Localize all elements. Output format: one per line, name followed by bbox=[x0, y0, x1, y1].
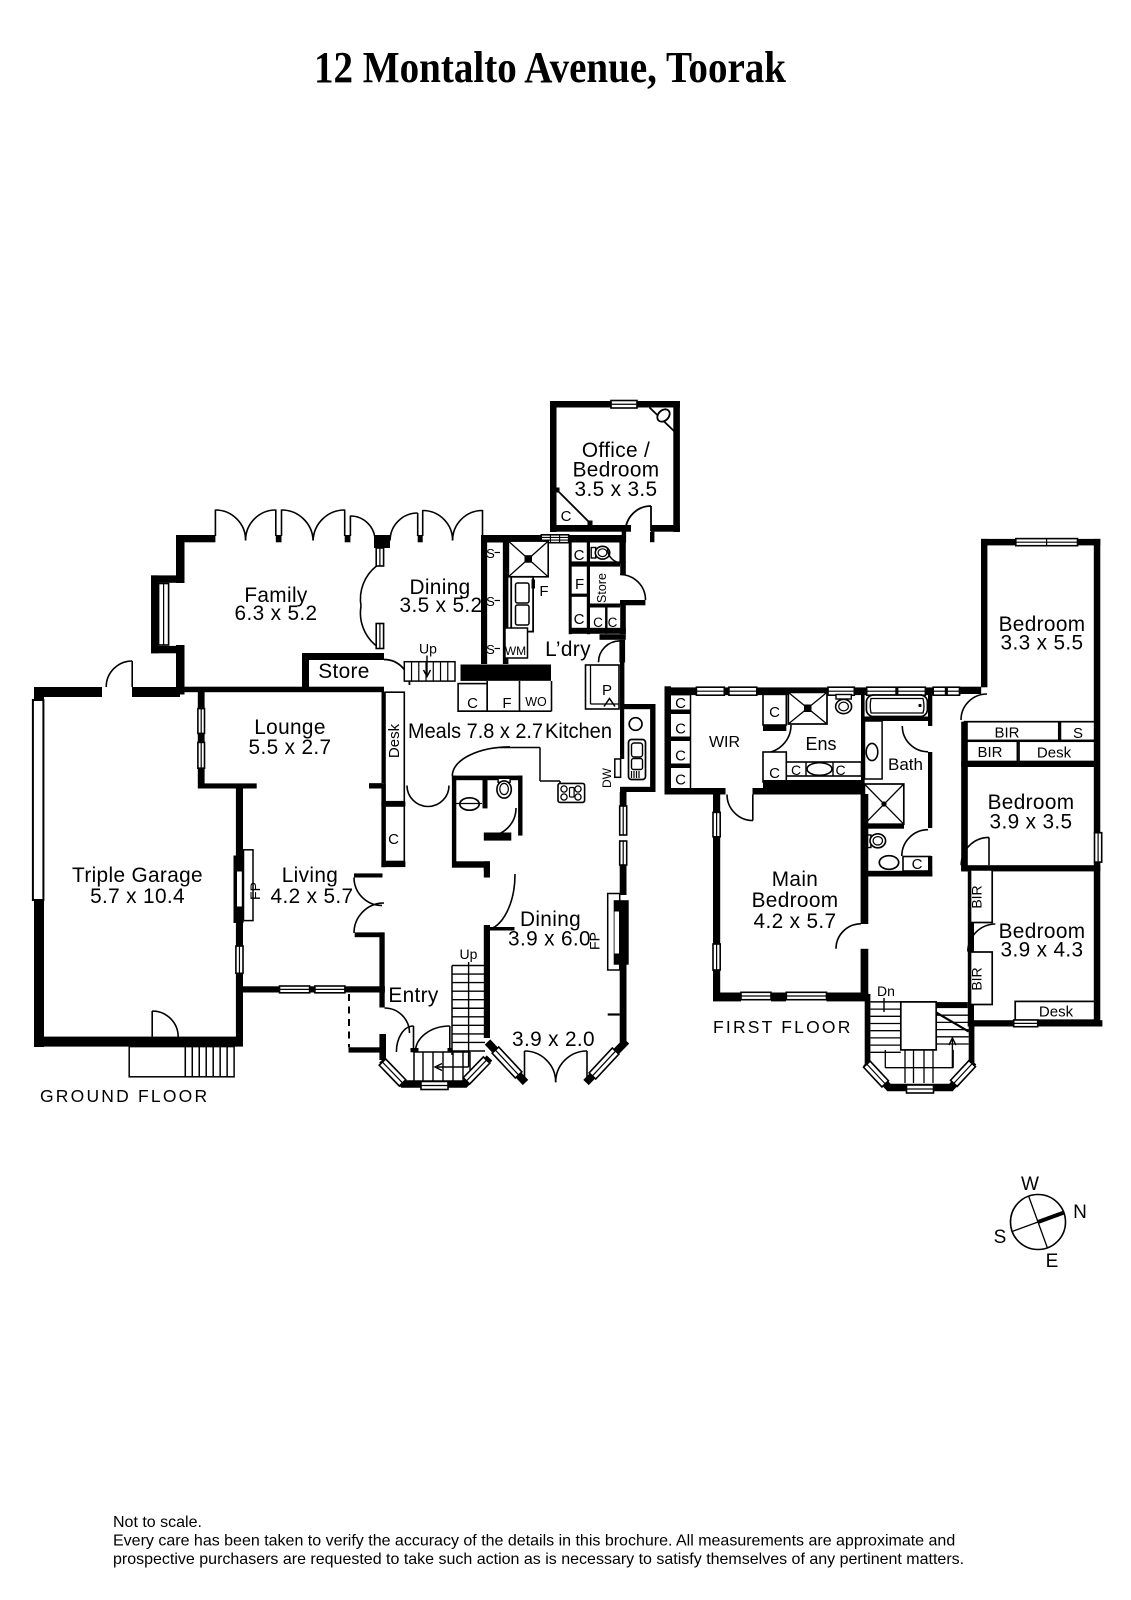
svg-text:P: P bbox=[602, 682, 612, 699]
svg-text:C: C bbox=[561, 508, 572, 525]
svg-text:BIR: BIR bbox=[977, 744, 1002, 761]
svg-text:Not to scale.: Not to scale. bbox=[113, 1514, 202, 1531]
svg-text:C: C bbox=[675, 748, 686, 765]
svg-text:Bedroom: Bedroom bbox=[752, 889, 839, 912]
svg-text:DW: DW bbox=[600, 767, 614, 788]
svg-text:C: C bbox=[769, 765, 780, 782]
svg-text:WM: WM bbox=[505, 644, 526, 658]
svg-text:F: F bbox=[575, 576, 584, 593]
svg-text:5.5 x 2.7: 5.5 x 2.7 bbox=[249, 736, 332, 759]
svg-text:3.9 x 4.3: 3.9 x 4.3 bbox=[1001, 939, 1084, 962]
svg-text:L’dry: L’dry bbox=[545, 638, 591, 661]
svg-text:4.2 x 5.7: 4.2 x 5.7 bbox=[271, 885, 354, 908]
svg-text:FP: FP bbox=[247, 882, 263, 900]
svg-text:C: C bbox=[388, 831, 399, 848]
svg-text:S: S bbox=[486, 642, 495, 657]
svg-text:WIR: WIR bbox=[709, 734, 740, 751]
svg-text:C: C bbox=[675, 772, 686, 789]
svg-text:Triple Garage: Triple Garage bbox=[72, 864, 203, 887]
svg-text:4.2 x 5.7: 4.2 x 5.7 bbox=[754, 910, 837, 933]
svg-text:5.7 x 10.4: 5.7 x 10.4 bbox=[90, 885, 185, 908]
svg-text:3.5 x 5.2: 3.5 x 5.2 bbox=[400, 594, 483, 617]
svg-text:Desk: Desk bbox=[386, 723, 403, 758]
svg-text:BIR: BIR bbox=[969, 885, 985, 908]
svg-text:C: C bbox=[593, 615, 603, 630]
svg-text:C: C bbox=[574, 547, 585, 564]
svg-text:C: C bbox=[608, 615, 618, 630]
svg-text:6.3 x 5.2: 6.3 x 5.2 bbox=[235, 602, 318, 625]
svg-text:S: S bbox=[994, 1227, 1007, 1248]
svg-text:GROUND FLOOR: GROUND FLOOR bbox=[40, 1086, 209, 1106]
svg-text:Store: Store bbox=[318, 660, 369, 683]
svg-text:E: E bbox=[1046, 1251, 1059, 1272]
svg-text:C: C bbox=[835, 762, 845, 778]
svg-text:Desk: Desk bbox=[1037, 745, 1072, 762]
svg-text:S: S bbox=[1073, 725, 1083, 742]
svg-text:Desk: Desk bbox=[1039, 1004, 1074, 1021]
svg-text:C: C bbox=[791, 762, 801, 778]
svg-text:Dn: Dn bbox=[877, 983, 895, 999]
svg-text:N: N bbox=[1073, 1202, 1087, 1223]
svg-text:3.9 x 2.0: 3.9 x 2.0 bbox=[512, 1028, 595, 1051]
svg-text:3.5 x 3.5: 3.5 x 3.5 bbox=[575, 478, 658, 501]
svg-text:BIR: BIR bbox=[969, 967, 985, 990]
svg-text:3.9 x 6.0: 3.9 x 6.0 bbox=[508, 928, 591, 951]
svg-text:W: W bbox=[1021, 1174, 1039, 1195]
svg-text:Kitchen: Kitchen bbox=[545, 720, 612, 743]
svg-text:F: F bbox=[539, 583, 548, 600]
svg-text:C: C bbox=[769, 704, 780, 721]
svg-text:12 Montalto Avenue, Toorak: 12 Montalto Avenue, Toorak bbox=[314, 43, 786, 92]
svg-text:C: C bbox=[675, 721, 686, 738]
svg-text:Store: Store bbox=[595, 573, 609, 603]
svg-text:FP: FP bbox=[587, 932, 603, 950]
svg-text:prospective purchasers are req: prospective purchasers are requested to … bbox=[113, 1551, 964, 1568]
svg-text:Main: Main bbox=[772, 868, 818, 891]
svg-text:S: S bbox=[486, 594, 495, 609]
svg-text:Every care has been taken to v: Every care has been taken to verify the … bbox=[113, 1533, 955, 1550]
svg-text:F: F bbox=[502, 695, 511, 712]
svg-text:S: S bbox=[486, 546, 495, 561]
svg-text:Meals 7.8 x 2.7: Meals 7.8 x 2.7 bbox=[408, 720, 543, 743]
svg-text:Living: Living bbox=[282, 864, 338, 887]
svg-text:Up: Up bbox=[419, 641, 437, 657]
svg-text:C: C bbox=[467, 695, 478, 712]
svg-text:FIRST FLOOR: FIRST FLOOR bbox=[713, 1017, 853, 1037]
svg-text:Entry: Entry bbox=[388, 984, 439, 1007]
svg-text:BIR: BIR bbox=[994, 725, 1019, 742]
svg-text:C: C bbox=[912, 856, 923, 873]
svg-text:WO: WO bbox=[525, 695, 547, 709]
svg-text:C: C bbox=[574, 611, 585, 628]
svg-text:Bath: Bath bbox=[888, 755, 923, 774]
svg-text:3.3 x 5.5: 3.3 x 5.5 bbox=[1001, 632, 1084, 655]
svg-text:C: C bbox=[675, 695, 686, 712]
svg-text:Ens: Ens bbox=[805, 734, 836, 754]
svg-text:3.9 x 3.5: 3.9 x 3.5 bbox=[990, 811, 1073, 834]
svg-text:Up: Up bbox=[460, 946, 478, 962]
